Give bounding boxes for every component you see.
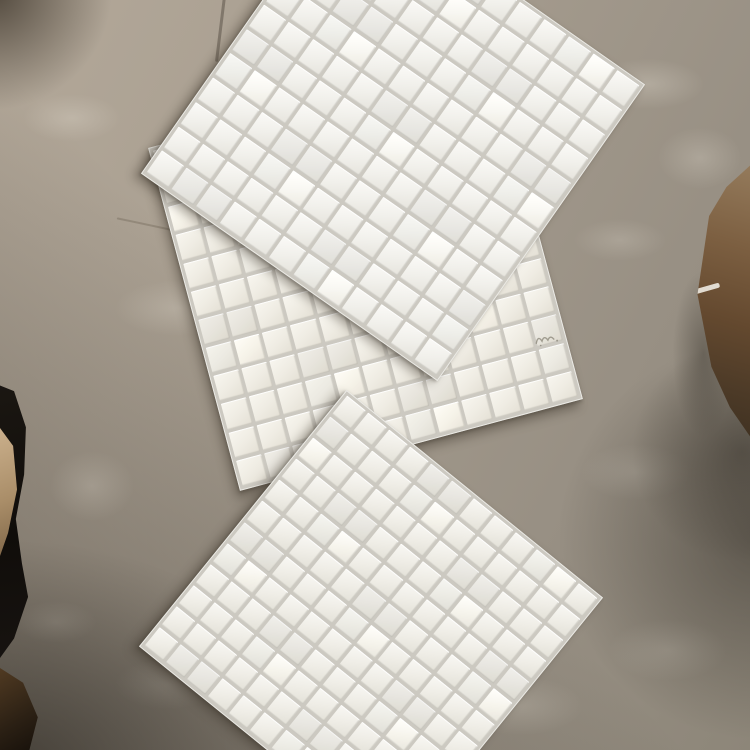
photo-scene — [0, 0, 750, 750]
mosaic-tile — [305, 375, 337, 407]
mosaic-tile — [257, 418, 289, 450]
mosaic-tile — [461, 394, 493, 426]
mosaic-tile — [277, 382, 309, 414]
mosaic-tile — [183, 257, 215, 289]
mosaic-tile — [211, 249, 243, 281]
mosaic-tile — [516, 258, 548, 290]
mosaic-tile — [219, 277, 251, 309]
mosaic-tile — [482, 358, 514, 390]
mosaic-tile — [191, 285, 223, 317]
mosaic-tile — [362, 360, 394, 392]
mosaic-tile — [495, 294, 527, 326]
mosaic-tile — [234, 334, 266, 366]
mosaic-tile — [206, 341, 238, 373]
mosaic-tile — [454, 365, 486, 397]
mosaic-tile — [290, 319, 322, 351]
mosaic-tile — [236, 454, 268, 486]
mosaic-tile — [247, 270, 279, 302]
mosaic-tile — [283, 290, 315, 322]
mosaic-tile — [213, 369, 245, 401]
mosaic-tile — [255, 298, 287, 330]
mosaic-tile — [176, 229, 208, 261]
mosaic-tile — [518, 378, 550, 410]
mosaic-tile — [523, 286, 555, 318]
mosaic-tile — [490, 386, 522, 418]
mosaic-tile — [226, 306, 258, 338]
mosaic-tile — [262, 326, 294, 358]
mosaic-tile — [270, 354, 302, 386]
mosaic-tile — [398, 380, 430, 412]
mosaic-tile — [433, 401, 465, 433]
mosaic-tile — [326, 339, 358, 371]
mosaic-tile — [510, 350, 542, 382]
mosaic-tile — [426, 373, 458, 405]
mosaic-tile — [503, 322, 535, 354]
mosaic-tile — [405, 409, 437, 441]
mosaic-tile — [221, 398, 253, 430]
mosaic-tile — [198, 313, 230, 345]
mosaic-tile — [249, 390, 281, 422]
mosaic-tile — [228, 426, 260, 458]
mosaic-tile — [242, 362, 274, 394]
mosaic-tile — [298, 347, 330, 379]
mosaic-tile — [474, 330, 506, 362]
mosaic-tile — [546, 371, 578, 403]
